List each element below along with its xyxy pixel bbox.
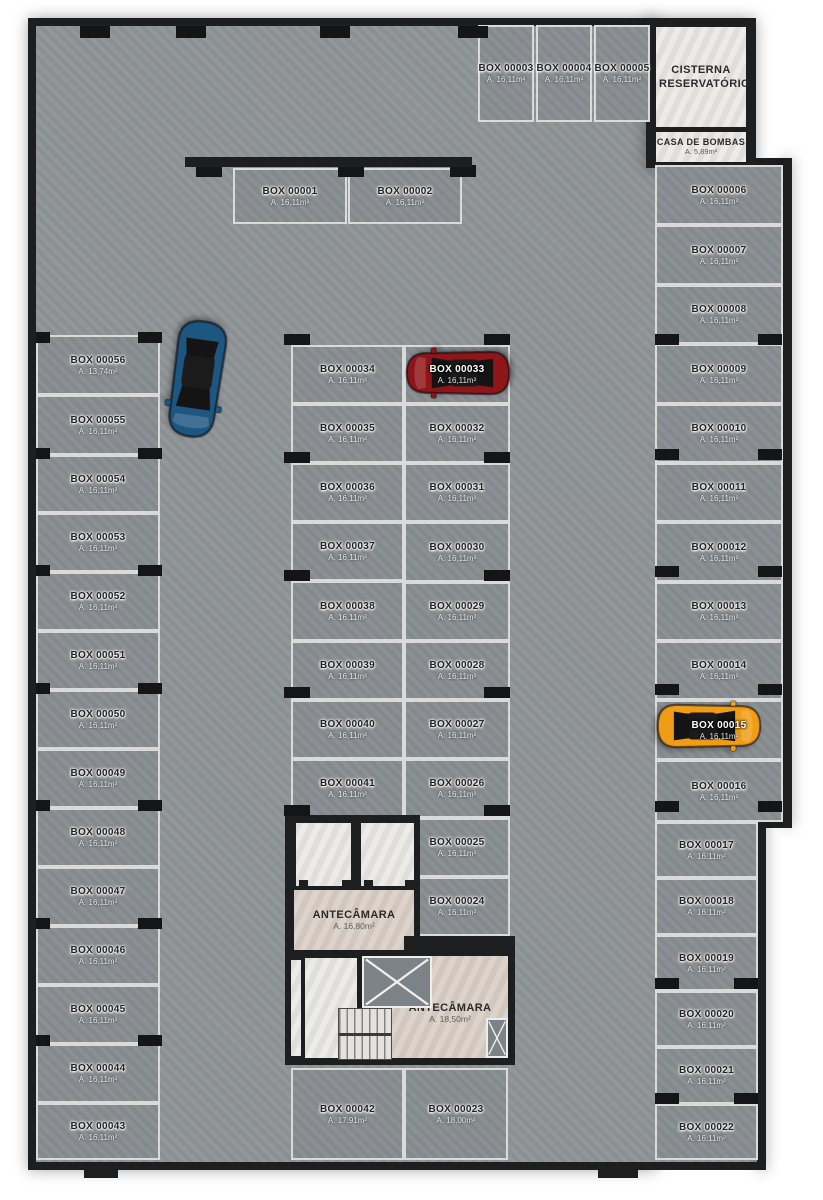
box-id: BOX 00021 — [679, 1065, 734, 1076]
parking-box-00001: BOX 00001A. 16,11m² — [233, 168, 347, 224]
pillar — [138, 448, 162, 459]
parking-box-00055: BOX 00055A. 16,11m² — [36, 395, 160, 455]
parking-box-00050: BOX 00050A. 16,11m² — [36, 690, 160, 749]
pillar — [284, 805, 310, 816]
parking-box-00053: BOX 00053A. 16,11m² — [36, 513, 160, 572]
box-area: A. 16,11m² — [487, 75, 526, 84]
box-id: BOX 00005 — [595, 63, 650, 74]
box-area: A. 17,91m² — [328, 1116, 367, 1125]
box-area: A. 16,11m² — [79, 1016, 118, 1025]
box-area: A. 16,11m² — [438, 731, 477, 740]
box-area: A. 16,11m² — [687, 965, 726, 974]
box-id: BOX 00007 — [692, 245, 747, 256]
parking-box-00056: BOX 00056A. 13,74m² — [36, 335, 160, 395]
pillar — [758, 801, 782, 812]
box-area: A. 16,11m² — [79, 427, 118, 436]
pillar — [138, 332, 162, 343]
pillar — [284, 687, 310, 698]
parking-box-00003: BOX 00003A. 16,11m² — [478, 25, 534, 122]
pillar — [138, 565, 162, 576]
pillar — [655, 978, 679, 989]
parking-box-00052: BOX 00052A. 16,11m² — [36, 572, 160, 631]
box-area: A. 16,11m² — [700, 554, 739, 563]
box-id: BOX 00035 — [320, 423, 375, 434]
box-id: BOX 00039 — [320, 660, 375, 671]
box-area: A. 16,11m² — [79, 957, 118, 966]
box-id: BOX 00024 — [430, 896, 485, 907]
parking-box-00036: BOX 00036A. 16,11m² — [291, 463, 404, 522]
box-area: A. 16,11m² — [687, 852, 726, 861]
box-id: BOX 00016 — [692, 781, 747, 792]
wing-bottom-wall — [648, 1162, 766, 1170]
pump-room: CASA DE BOMBAS A. 5,89m² — [656, 132, 746, 162]
box-area: A. 16,11m² — [438, 376, 477, 385]
pump-room-label: CASA DE BOMBAS — [657, 138, 745, 148]
box-area: A. 18,00m² — [436, 1116, 475, 1125]
box-area: A. 13,74m² — [78, 367, 117, 376]
box-id: BOX 00020 — [679, 1009, 734, 1020]
elevator-door-jamb — [364, 880, 373, 888]
box-id: BOX 00038 — [320, 601, 375, 612]
box-id: BOX 00025 — [430, 837, 485, 848]
box-area: A. 16,11m² — [700, 732, 739, 741]
box-area: A. 16,11m² — [545, 75, 584, 84]
box-id: BOX 00047 — [71, 886, 126, 897]
anteroom-upper-label: ANTECÂMARA — [313, 909, 396, 921]
box-id: BOX 00040 — [320, 719, 375, 730]
pillar — [655, 801, 679, 812]
pillar — [36, 332, 50, 343]
box-area: A. 16,11m² — [438, 435, 477, 444]
parking-box-00005: BOX 00005A. 16,11m² — [594, 25, 650, 122]
pillar — [284, 334, 310, 345]
parking-box-00034: BOX 00034A. 16,11m² — [291, 345, 404, 404]
box-area: A. 16,11m² — [79, 721, 118, 730]
parking-box-00051: BOX 00051A. 16,11m² — [36, 631, 160, 690]
pillar — [655, 334, 679, 345]
box-area: A. 16,11m² — [79, 544, 118, 553]
parking-box-00020: BOX 00020A. 16,11m² — [655, 991, 758, 1047]
box-area: A. 16,11m² — [386, 198, 425, 207]
parking-box-00046: BOX 00046A. 16,11m² — [36, 926, 160, 985]
box-id: BOX 00012 — [692, 542, 747, 553]
box-area: A. 16,11m² — [700, 672, 739, 681]
cisterna-label: CISTERNA RESERVATÓRIO — [659, 63, 743, 92]
parking-box-00006: BOX 00006A. 16,11m² — [655, 165, 783, 225]
pillar — [734, 1093, 758, 1104]
parking-box-00007: BOX 00007A. 16,11m² — [655, 225, 783, 285]
parking-box-00023: BOX 00023A. 18,00m² — [404, 1068, 508, 1160]
box-area: A. 16,11m² — [438, 790, 477, 799]
pillar — [284, 570, 310, 581]
pillar — [80, 26, 110, 38]
box-id: BOX 00006 — [692, 185, 747, 196]
pillar — [484, 452, 510, 463]
box-area: A. 16,11m² — [438, 613, 477, 622]
box-id: BOX 00046 — [71, 945, 126, 956]
box-area: A. 16,11m² — [79, 839, 118, 848]
box-area: A. 16,11m² — [271, 198, 310, 207]
pillar — [655, 566, 679, 577]
box-area: A. 16,11m² — [687, 1077, 726, 1086]
staircase — [338, 1008, 392, 1060]
elevator-shaft — [361, 823, 414, 886]
box-area: A. 16,11m² — [700, 316, 739, 325]
anteroom-lower-area: A. 18,50m² — [429, 1014, 471, 1024]
box-area: A. 16,11m² — [438, 494, 477, 503]
box-id: BOX 00013 — [692, 601, 747, 612]
box-id: BOX 00002 — [378, 186, 433, 197]
box-area: A. 16,11m² — [700, 435, 739, 444]
box-area: A. 16,11m² — [687, 1021, 726, 1030]
pillar — [655, 684, 679, 695]
box-area: A. 16,11m² — [687, 908, 726, 917]
box-area: A. 16,11m² — [700, 376, 739, 385]
bottom-wall-tab — [598, 1168, 638, 1178]
box-id: BOX 00053 — [71, 532, 126, 543]
box-id: BOX 00044 — [71, 1063, 126, 1074]
box-id: BOX 00001 — [263, 186, 318, 197]
box-area: A. 16,11m² — [328, 672, 367, 681]
box-id: BOX 00030 — [430, 542, 485, 553]
pillar — [36, 448, 50, 459]
box-area: A. 16,11m² — [700, 494, 739, 503]
box-id: BOX 00028 — [430, 660, 485, 671]
box-id: BOX 00050 — [71, 709, 126, 720]
parking-box-00038: BOX 00038A. 16,11m² — [291, 581, 404, 641]
parking-box-00043: BOX 00043A. 16,11m² — [36, 1103, 160, 1160]
parking-box-00018: BOX 00018A. 16,11m² — [655, 878, 758, 935]
pillar — [758, 334, 782, 345]
pillar — [36, 918, 50, 929]
parking-box-00017: BOX 00017A. 16,11m² — [655, 822, 758, 878]
parking-box-00031: BOX 00031A. 16,11m² — [404, 463, 510, 522]
box-id: BOX 00009 — [692, 364, 747, 375]
box-id: BOX 00017 — [679, 840, 734, 851]
box-area: A. 16,11m² — [328, 435, 367, 444]
box-area: A. 16,11m² — [79, 603, 118, 612]
parking-box-00011: BOX 00011A. 16,11m² — [655, 463, 783, 522]
parking-box-00042: BOX 00042A. 17,91m² — [291, 1068, 404, 1160]
pillar — [320, 26, 350, 38]
pillar — [484, 334, 510, 345]
box-id: BOX 00018 — [679, 896, 734, 907]
box-id: BOX 00015 — [692, 720, 747, 731]
box-id: BOX 00042 — [320, 1104, 375, 1115]
cross-icon — [364, 958, 430, 1006]
box-area: A. 16,11m² — [328, 494, 367, 503]
box-id: BOX 00036 — [320, 482, 375, 493]
box-id: BOX 00037 — [320, 541, 375, 552]
box-id: BOX 00055 — [71, 415, 126, 426]
box-id: BOX 00019 — [679, 953, 734, 964]
parking-box-00040: BOX 00040A. 16,11m² — [291, 700, 404, 759]
box-area: A. 16,11m² — [603, 75, 642, 84]
parking-box-00009: BOX 00009A. 16,11m² — [655, 344, 783, 404]
box-id: BOX 00031 — [430, 482, 485, 493]
box-area: A. 16,11m² — [700, 793, 739, 802]
box-id: BOX 00032 — [430, 423, 485, 434]
parking-box-00002: BOX 00002A. 16,11m² — [348, 168, 462, 224]
parking-box-00029: BOX 00029A. 16,11m² — [404, 582, 510, 641]
box-id: BOX 00045 — [71, 1004, 126, 1015]
box-area: A. 16,11m² — [700, 197, 739, 206]
pillar — [138, 918, 162, 929]
box-area: A. 16,11m² — [687, 1134, 726, 1143]
inner-wall — [404, 936, 515, 956]
pillar — [484, 687, 510, 698]
pillar — [36, 800, 50, 811]
box-id: BOX 00051 — [71, 650, 126, 661]
box-id: BOX 00041 — [320, 778, 375, 789]
box-id: BOX 00008 — [692, 304, 747, 315]
box-area: A. 16,11m² — [438, 849, 477, 858]
pillar — [758, 684, 782, 695]
parking-floor-plan: CISTERNA RESERVATÓRIO CASA DE BOMBAS A. … — [0, 0, 823, 1200]
box-area: A. 16,11m² — [438, 908, 477, 917]
crossed-closet — [486, 1018, 508, 1058]
box-id: BOX 00010 — [692, 423, 747, 434]
crossed-shaft — [362, 956, 432, 1008]
box-id: BOX 00056 — [71, 355, 126, 366]
pillar — [36, 683, 50, 694]
pillar — [138, 1035, 162, 1046]
duct-shaft — [291, 960, 301, 1056]
pillar — [36, 565, 50, 576]
box-area: A. 16,11m² — [438, 554, 477, 563]
box-id: BOX 00026 — [430, 778, 485, 789]
stair-landing — [339, 1033, 391, 1036]
box-area: A. 16,11m² — [328, 376, 367, 385]
elevator-door-jamb — [299, 880, 308, 888]
anteroom-upper-area: A. 16,80m² — [333, 921, 375, 931]
box-area: A. 16,11m² — [79, 780, 118, 789]
pillar — [458, 26, 488, 38]
pillar — [138, 683, 162, 694]
box-id: BOX 00054 — [71, 474, 126, 485]
bottom-wall-tab — [84, 1168, 118, 1178]
box-area: A. 16,11m² — [700, 613, 739, 622]
wing-right-wall-lower — [757, 818, 766, 1170]
box-id: BOX 00049 — [71, 768, 126, 779]
parking-box-00044: BOX 00044A. 16,11m² — [36, 1044, 160, 1103]
box-id: BOX 00027 — [430, 719, 485, 730]
box-area: A. 16,11m² — [79, 662, 118, 671]
box-area: A. 16,11m² — [79, 1133, 118, 1142]
pillar — [484, 570, 510, 581]
box-id: BOX 00014 — [692, 660, 747, 671]
box-id: BOX 00023 — [429, 1104, 484, 1115]
pillar — [734, 978, 758, 989]
anteroom-upper: ANTECÂMARA A. 16,80m² — [294, 890, 414, 950]
box-area: A. 16,11m² — [328, 553, 367, 562]
pillar — [284, 452, 310, 463]
pillar — [138, 800, 162, 811]
pillar — [655, 449, 679, 460]
pillar — [484, 805, 510, 816]
parking-box-00022: BOX 00022A. 16,11m² — [655, 1104, 758, 1160]
pillar — [758, 449, 782, 460]
box-area: A. 16,11m² — [700, 257, 739, 266]
pump-room-area: A. 5,89m² — [685, 147, 718, 156]
box-area: A. 16,11m² — [79, 898, 118, 907]
elevator-shaft — [296, 823, 351, 886]
parking-box-00054: BOX 00054A. 16,11m² — [36, 455, 160, 513]
box-area: A. 16,11m² — [328, 613, 367, 622]
elevator-door-jamb — [405, 880, 414, 888]
elevator-door-jamb — [342, 880, 351, 888]
pillar — [655, 1093, 679, 1104]
box-area: A. 16,11m² — [79, 1075, 118, 1084]
wing-right-wall-upper — [783, 158, 792, 826]
cross-icon — [488, 1020, 506, 1056]
cisterna-room: CISTERNA RESERVATÓRIO — [656, 27, 746, 127]
box-id: BOX 00043 — [71, 1121, 126, 1132]
parking-box-00013: BOX 00013A. 16,11m² — [655, 582, 783, 641]
box-area: A. 16,11m² — [328, 731, 367, 740]
box-id: BOX 00003 — [479, 63, 534, 74]
pillar — [36, 1035, 50, 1046]
box-area: A. 16,11m² — [79, 486, 118, 495]
pillar — [758, 566, 782, 577]
box-id: BOX 00033 — [430, 364, 485, 375]
parking-box-00027: BOX 00027A. 16,11m² — [404, 700, 510, 759]
inner-wall — [185, 157, 472, 167]
parking-box-00004: BOX 00004A. 16,11m² — [536, 25, 592, 122]
box-id: BOX 00052 — [71, 591, 126, 602]
box-id: BOX 00004 — [537, 63, 592, 74]
box-area: A. 16,11m² — [328, 790, 367, 799]
box-area: A. 16,11m² — [438, 672, 477, 681]
pillar — [176, 26, 206, 38]
parking-box-00048: BOX 00048A. 16,11m² — [36, 808, 160, 867]
box-id: BOX 00022 — [679, 1122, 734, 1133]
parking-box-00016: BOX 00016A. 16,11m² — [655, 760, 783, 822]
box-id: BOX 00011 — [692, 482, 746, 493]
box-id: BOX 00048 — [71, 827, 126, 838]
box-id: BOX 00034 — [320, 364, 375, 375]
box-id: BOX 00029 — [430, 601, 485, 612]
